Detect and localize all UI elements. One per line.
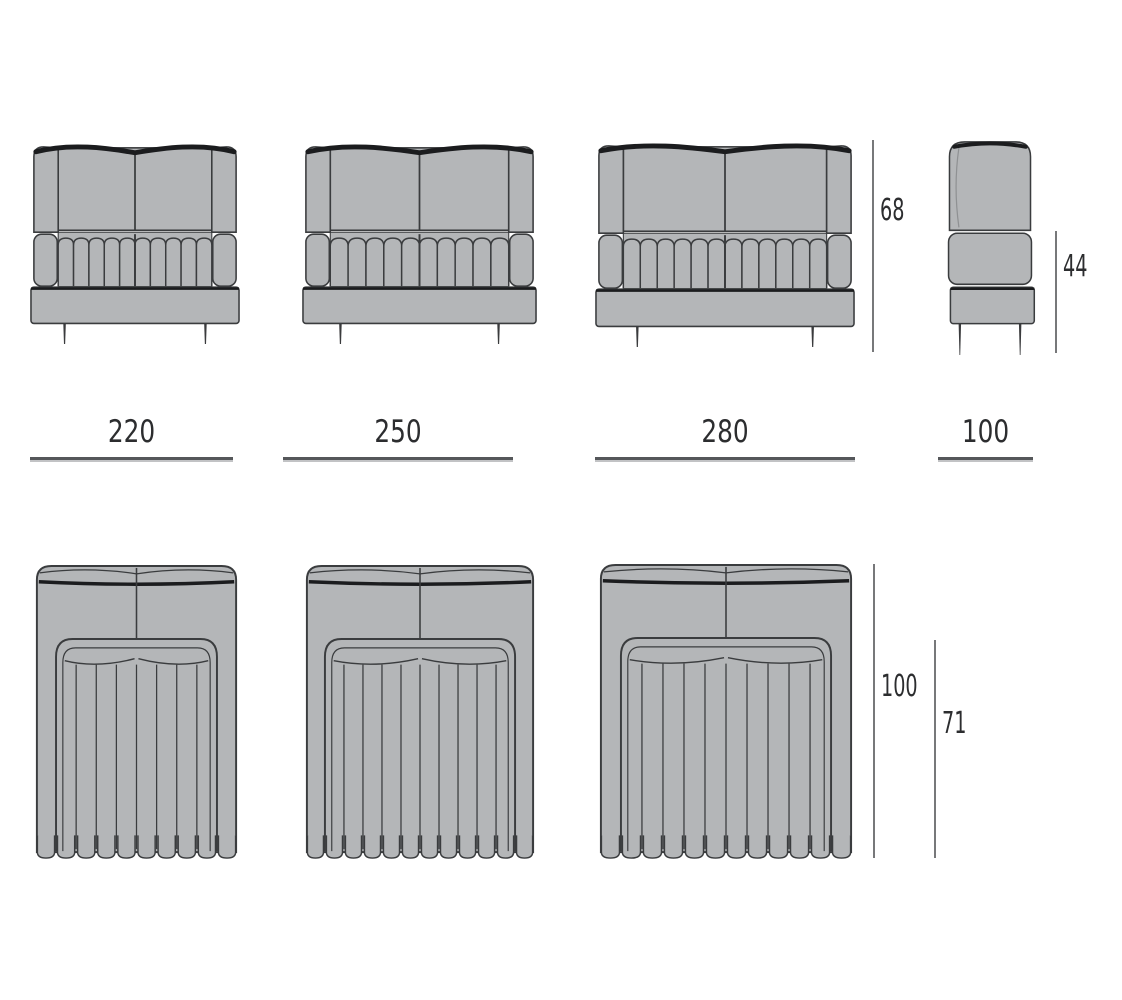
sofa-top-view-220: [33, 563, 240, 863]
sofa-top-view-250: [303, 563, 537, 863]
sofa-side-view-100: [941, 137, 1039, 357]
seat-depth-dim-line-71: [934, 640, 936, 858]
width-label-280: 280: [621, 417, 829, 448]
width-dim-line-100: [938, 457, 1033, 462]
height-dim-line-68: [872, 140, 874, 352]
sofa-front-view-280: [595, 139, 855, 349]
sofa-dimensions-diagram: 68 44 220 250 280 100 100 71: [0, 0, 1122, 1000]
width-dim-line-280: [595, 457, 855, 462]
seat-height-label-44: 44: [1063, 252, 1087, 282]
width-label-100: 100: [948, 417, 1024, 448]
depth-label-100: 100: [881, 672, 918, 702]
height-label-68: 68: [880, 196, 904, 226]
width-dim-line-220: [30, 457, 233, 462]
depth-dim-line-100: [873, 564, 875, 858]
sofa-top-view-280: [597, 562, 855, 863]
seat-depth-label-71: 71: [942, 709, 966, 739]
width-label-250: 250: [306, 417, 490, 448]
width-label-220: 220: [50, 417, 212, 448]
sofa-front-view-220: [30, 140, 240, 346]
sofa-front-view-250: [302, 140, 537, 346]
seat-height-dim-line-44: [1055, 231, 1057, 353]
width-dim-line-250: [283, 457, 513, 462]
